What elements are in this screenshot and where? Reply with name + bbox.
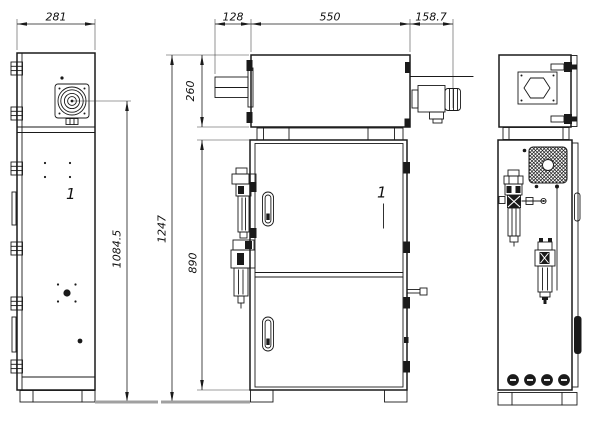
dim-label-top-offset: 128 — [223, 11, 244, 24]
drawing-sheet: 281 — [0, 0, 605, 424]
right-spindle-connector — [410, 77, 473, 124]
callout-item-front: 1 — [377, 184, 387, 229]
dim-top-width: 550 — [251, 11, 410, 53]
side-pipe-fitting — [407, 288, 427, 295]
upper-door-handle — [263, 192, 274, 226]
dim-connector-length: 158.7 — [410, 11, 453, 109]
toggle-latch-lower — [551, 114, 577, 124]
door-handle-edge-upper — [575, 193, 581, 221]
hole-pattern — [44, 162, 83, 344]
top-box — [215, 55, 473, 127]
mounting-flange — [257, 128, 403, 140]
callout-item-side: 1 — [66, 185, 76, 203]
dim-label-axis-height: 1084.5 — [111, 230, 124, 269]
hex-access-plate — [518, 72, 557, 104]
dim-top-offset: 128 — [215, 11, 251, 75]
dim-side-width: 281 — [17, 11, 95, 51]
rotary-connector — [55, 76, 131, 124]
left-side-view: 281 — [11, 11, 158, 403]
lower-door-handle — [263, 317, 274, 351]
dim-label-total-height: 1247 — [156, 215, 169, 243]
right-side-view — [498, 55, 582, 405]
cabinet-front-body — [250, 140, 407, 390]
dim-label-connector-length: 158.7 — [415, 11, 447, 24]
door-handle-edge-lower — [574, 316, 582, 354]
top-box-side — [499, 55, 577, 127]
dim-top-height: 260 — [166, 55, 249, 127]
feet-front — [251, 390, 408, 402]
toggle-latch-upper — [551, 62, 577, 72]
dim-label-side-width: 281 — [46, 11, 67, 24]
dim-label-top-height: 260 — [184, 81, 197, 102]
cable-gland — [542, 375, 553, 386]
dim-label-body-height: 890 — [187, 253, 200, 274]
dim-total-height: 1247 — [156, 55, 173, 402]
cable-gland — [525, 375, 536, 386]
dim-axis-height: 1084.5 — [111, 101, 128, 402]
air-pipe — [555, 185, 559, 291]
front-view: 128 550 158.7 260 1247 890 — [156, 11, 474, 403]
svg-text:1: 1 — [377, 184, 387, 202]
cable-glands — [508, 375, 570, 386]
fan-grille — [523, 147, 567, 188]
left-rail-protrusion — [215, 68, 253, 107]
dim-label-top-width: 550 — [320, 11, 341, 24]
frl-unit-b — [535, 238, 555, 304]
cable-gland — [559, 375, 570, 386]
frl-unit-front — [231, 168, 257, 308]
link-rod — [522, 198, 546, 205]
cable-gland — [508, 375, 519, 386]
mounting-flange-side — [503, 128, 569, 140]
drawing-canvas: 281 — [0, 0, 605, 424]
cabinet-side-body — [17, 53, 95, 402]
